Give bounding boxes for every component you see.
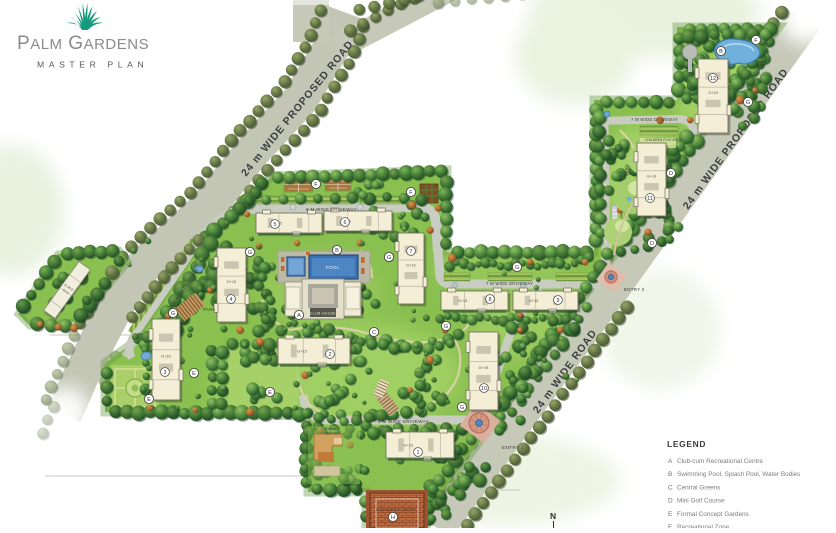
svg-text:9: 9 [557, 298, 560, 304]
svg-text:7 M WIDE DRIVEWAY: 7 M WIDE DRIVEWAY [631, 117, 678, 122]
svg-text:G: G [387, 255, 391, 261]
svg-text:Club-cum Recreational Centre: Club-cum Recreational Centre [677, 458, 763, 465]
svg-text:D+15: D+15 [406, 264, 415, 268]
svg-text:D: D [668, 498, 673, 505]
svg-text:G+15: G+15 [403, 444, 412, 448]
svg-text:D+16: D+16 [161, 355, 170, 359]
svg-text:G: G [171, 311, 175, 317]
svg-text:G: G [515, 265, 519, 271]
svg-text:PRIMARY: PRIMARY [324, 427, 341, 431]
svg-text:C: C [372, 330, 376, 336]
svg-text:Formal Concept Gardens: Formal Concept Gardens [677, 511, 749, 518]
svg-text:8: 8 [489, 297, 492, 303]
svg-text:H: H [391, 515, 395, 521]
svg-text:N: N [550, 511, 556, 521]
svg-text:CONVENIENT SHOPS: CONVENIENT SHOPS [376, 508, 417, 512]
svg-text:12: 12 [710, 76, 716, 82]
svg-text:8 M WIDE DRIVEWAY: 8 M WIDE DRIVEWAY [306, 207, 357, 212]
svg-text:B: B [719, 49, 723, 55]
svg-text:Central Greens: Central Greens [677, 484, 720, 491]
svg-text:D: D [650, 241, 654, 247]
svg-text:PARK: PARK [417, 370, 431, 375]
svg-text:G: G [444, 324, 448, 330]
svg-text:LEGEND: LEGEND [667, 439, 706, 449]
svg-text:D+15: D+15 [458, 299, 467, 303]
svg-text:1: 1 [417, 450, 420, 456]
svg-text:G+15: G+15 [529, 299, 538, 303]
svg-text:E: E [668, 511, 672, 518]
svg-text:10: 10 [481, 386, 487, 392]
svg-text:G+15: G+15 [297, 350, 306, 354]
svg-text:6: 6 [344, 220, 347, 226]
svg-text:F: F [314, 182, 318, 188]
svg-text:B: B [668, 471, 672, 478]
svg-text:E: E [147, 397, 151, 403]
svg-text:G+19: G+19 [708, 91, 717, 95]
svg-text:MASTER PLAN: MASTER PLAN [37, 60, 148, 70]
svg-text:PARK: PARK [203, 307, 216, 312]
svg-text:D+15: D+15 [227, 280, 236, 284]
svg-text:D: D [669, 171, 673, 177]
svg-text:F: F [668, 524, 672, 528]
svg-text:SCHOOL: SCHOOL [324, 432, 339, 436]
svg-text:5: 5 [274, 222, 277, 228]
svg-text:8 M WIDE DRIVEWAY: 8 M WIDE DRIVEWAY [378, 419, 429, 424]
svg-text:G+19: G+19 [479, 366, 488, 370]
svg-text:7: 7 [410, 249, 413, 255]
svg-text:PARK: PARK [624, 164, 629, 176]
svg-text:CLUB HOUSE: CLUB HOUSE [310, 312, 336, 316]
svg-text:G: G [746, 100, 750, 106]
svg-text:G: G [248, 250, 252, 256]
svg-text:2: 2 [329, 352, 332, 358]
svg-text:F: F [409, 190, 413, 196]
svg-text:7 M WIDE DRIVEWAY: 7 M WIDE DRIVEWAY [486, 281, 533, 286]
svg-text:CHILDREN PLAY AREA: CHILDREN PLAY AREA [645, 138, 682, 142]
svg-text:F: F [754, 38, 758, 44]
svg-text:A: A [668, 458, 673, 465]
svg-text:E: E [192, 371, 196, 377]
svg-text:4: 4 [230, 297, 233, 303]
svg-text:11: 11 [647, 196, 653, 202]
svg-text:POOL: POOL [326, 265, 340, 270]
svg-text:3: 3 [164, 370, 167, 376]
svg-text:G: G [460, 405, 464, 411]
svg-text:E: E [268, 390, 272, 396]
svg-text:ENTRY 1: ENTRY 1 [502, 445, 524, 450]
svg-text:G+19: G+19 [647, 175, 656, 179]
svg-text:C: C [668, 484, 673, 491]
svg-text:PALM GARDENS: PALM GARDENS [17, 33, 149, 54]
svg-text:Swimming Pool, Splash Pool, Wa: Swimming Pool, Splash Pool, Water Bodies [677, 471, 800, 478]
svg-text:Mini Golf Course: Mini Golf Course [677, 498, 725, 505]
svg-text:ENTRY 2: ENTRY 2 [624, 287, 645, 292]
svg-text:A: A [297, 313, 301, 319]
svg-text:Recreational Zone: Recreational Zone [677, 524, 730, 528]
svg-text:B: B [335, 248, 339, 254]
